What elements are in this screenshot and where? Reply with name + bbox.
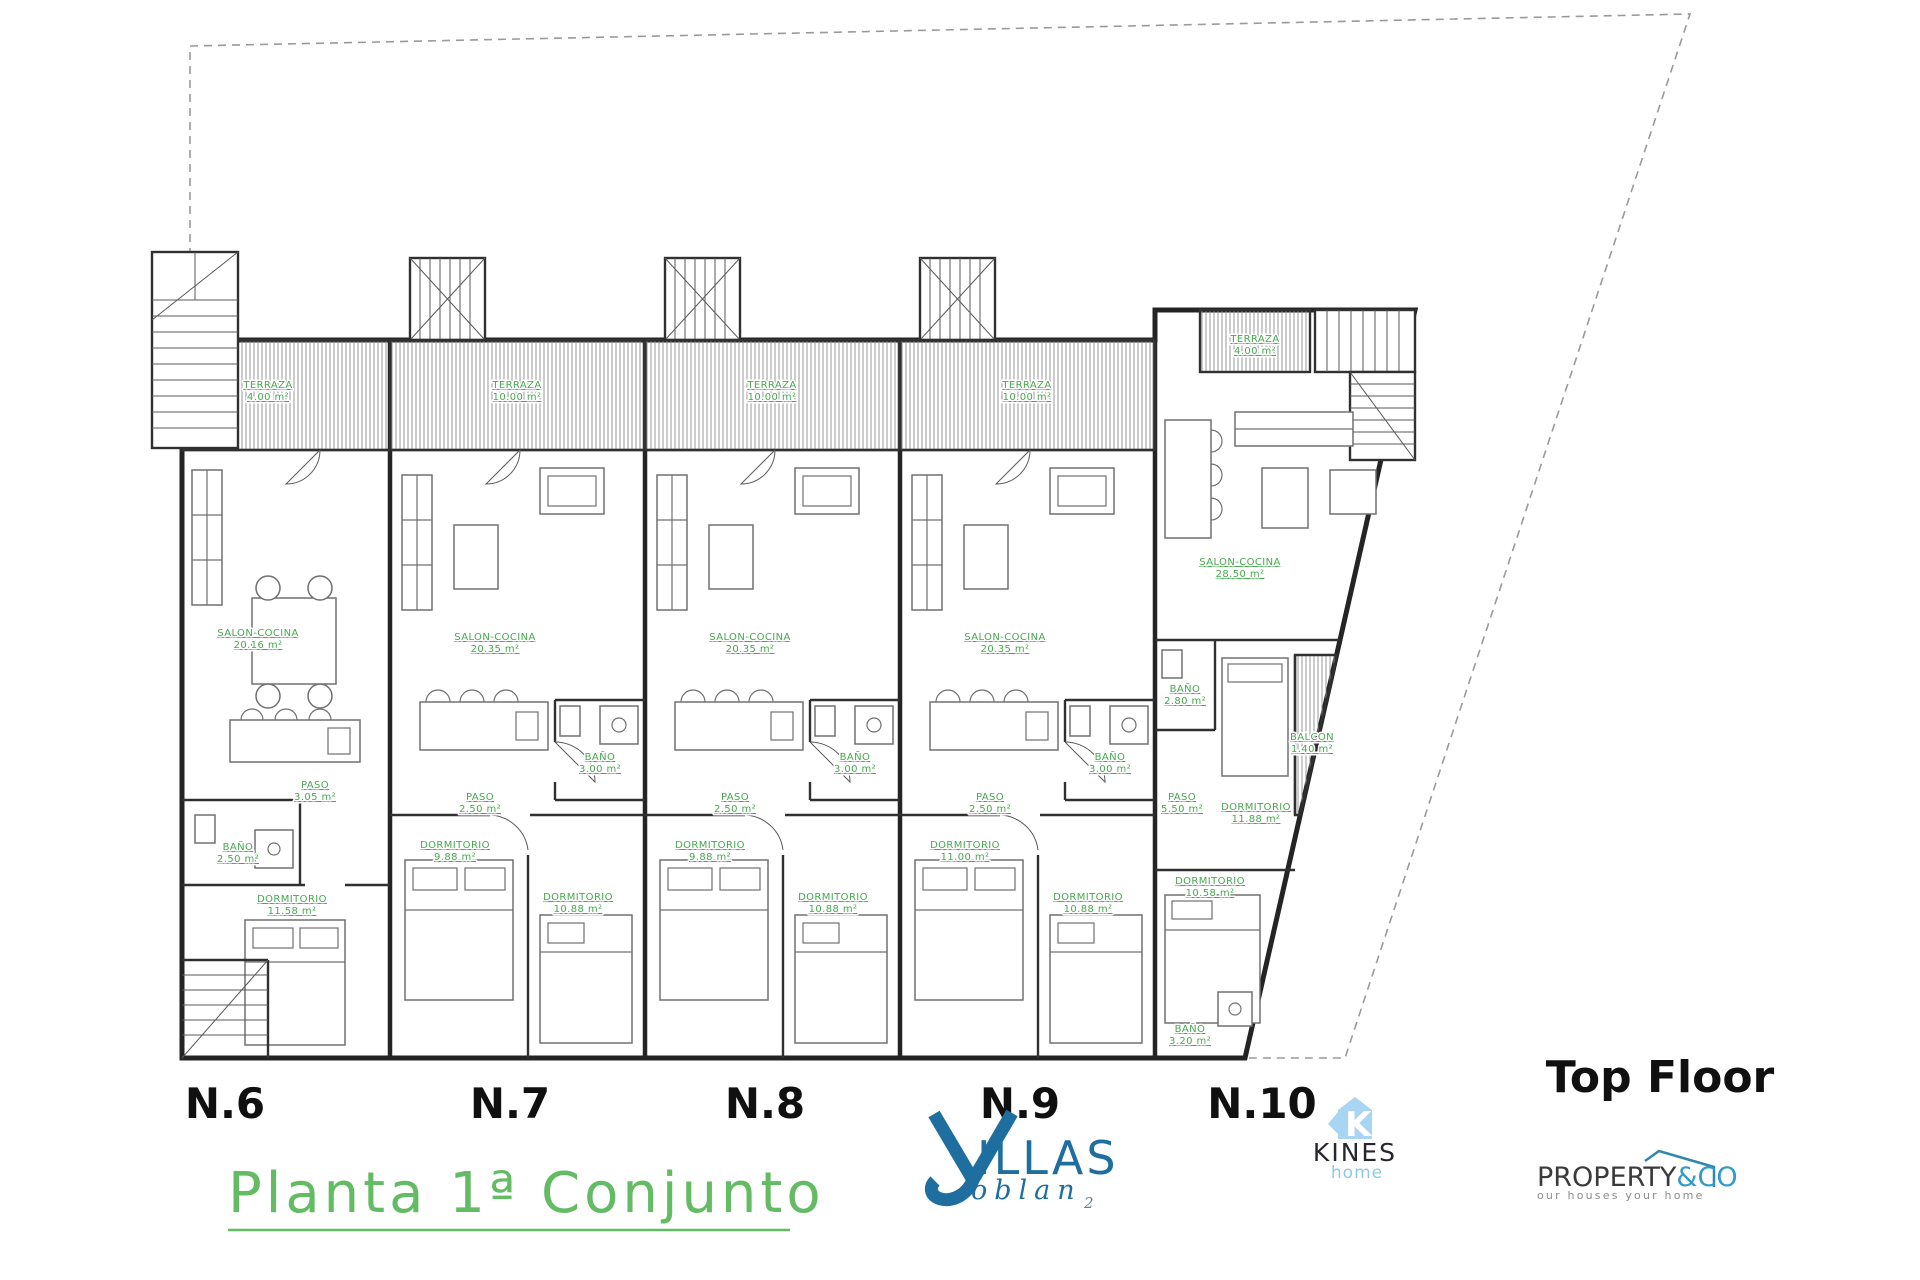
room-label-n-10-dormitorio: DORMITORIO11.88 m² [1221, 802, 1291, 825]
unit-n7 [390, 258, 645, 1058]
room-label-n-6-dormitorio: DORMITORIO11.58 m² [257, 894, 327, 917]
room-label-n-9-dormitorio: DORMITORIO10.88 m² [1053, 892, 1123, 915]
room-label-n-8-dormitorio: DORMITORIO10.88 m² [798, 892, 868, 915]
unit-n9 [900, 258, 1155, 1058]
villas-oblan-text: oblan [971, 1175, 1082, 1206]
room-label-n-7-dormitorio: DORMITORIO10.88 m² [543, 892, 613, 915]
room-label-n-10-terraza: TERRAZA4.00 m² [1229, 334, 1279, 357]
villas-oblan-index: 2 [1083, 1194, 1094, 1212]
kines-home-logo: K KINES home [1313, 1097, 1397, 1183]
unit-number-labels: N.6 N.7 N.8 N.9 N.10 [185, 1079, 1317, 1128]
unit-n10 [1155, 310, 1415, 1026]
room-label-n-8-terraza: TERRAZA10.00 m² [746, 380, 796, 403]
room-label-n-9-ba-o: BAÑO3.00 m² [1089, 750, 1131, 775]
property-tagline: our houses your home [1537, 1189, 1705, 1202]
kines-arrow-icon [1328, 1112, 1338, 1134]
room-label-n-8-salon-cocina: SALON-COCINA20.35 m² [709, 632, 790, 655]
page-title: Planta 1ª Conjunto [228, 1161, 825, 1226]
room-label-n-7-ba-o: BAÑO3.00 m² [579, 750, 621, 775]
room-label-n-8-ba-o: BAÑO3.00 m² [834, 750, 876, 775]
property-co-logo: PROPERTY&CO our houses your home [1537, 1151, 1738, 1202]
room-label-n-9-terraza: TERRAZA10.00 m² [1001, 380, 1051, 403]
room-label-n-10-paso: PASO5.50 m² [1161, 792, 1203, 815]
room-label-n-6-ba-o: BAÑO2.50 m² [217, 840, 259, 865]
unit-n8 [645, 258, 900, 1058]
room-label-n-8-paso: PASO2.50 m² [714, 792, 756, 815]
unit-label-n7: N.7 [470, 1079, 550, 1128]
unit-label-n6: N.6 [185, 1079, 265, 1128]
room-label-n-9-paso: PASO2.50 m² [969, 792, 1011, 815]
unit-label-n9: N.9 [980, 1079, 1060, 1128]
floor-plan-drawing: TERRAZA4.00 m²SALON-COCINA20.16 m²PASO3.… [0, 0, 1920, 1280]
room-label-n-6-terraza: TERRAZA4.00 m² [242, 380, 292, 403]
unit-n6 [152, 252, 390, 1058]
room-label-n-9-salon-cocina: SALON-COCINA20.35 m² [964, 632, 1045, 655]
kines-home-text: home [1331, 1163, 1383, 1183]
floor-label: Top Floor [1546, 1052, 1775, 1103]
room-label-n-6-paso: PASO3.05 m² [294, 780, 336, 803]
room-label-n-7-paso: PASO2.50 m² [459, 792, 501, 815]
floorplan-page: TERRAZA4.00 m²SALON-COCINA20.16 m²PASO3.… [0, 0, 1920, 1280]
unit-label-n10: N.10 [1207, 1079, 1317, 1128]
room-label-n-10-salon-cocina: SALON-COCINA28.50 m² [1199, 557, 1280, 580]
room-label-n-10-balcon: BALCON1.40 m² [1290, 732, 1334, 755]
room-label-n-10-ba-o: BAÑO3.20 m² [1169, 1022, 1211, 1047]
room-label-n-7-salon-cocina: SALON-COCINA20.35 m² [454, 632, 535, 655]
room-label-n-10-ba-o: BAÑO2.80 m² [1164, 682, 1206, 707]
room-label-n-7-terraza: TERRAZA10.00 m² [491, 380, 541, 403]
unit-label-n8: N.8 [725, 1079, 805, 1128]
